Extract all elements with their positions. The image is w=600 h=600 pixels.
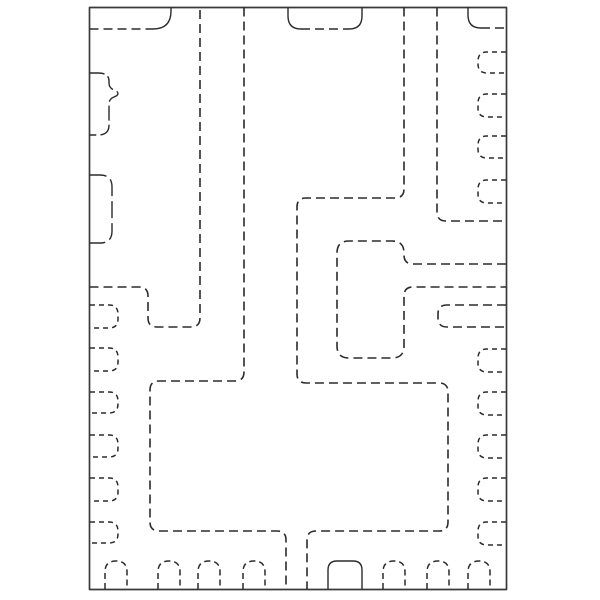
left-edge-pad-3 [90,392,118,413]
right-edge-pad-3 [478,136,506,158]
right-edge-pad-7 [478,435,506,458]
bottom-edge-pad-4 [243,561,265,589]
center-right-region-boundary [297,8,448,590]
package-outer-border [90,8,507,590]
left-edge-pad-4 [90,435,118,457]
bottom-edge-pad-5 [383,561,405,589]
bottom-edge-pad-7 [468,561,490,589]
left-rounded-lead [90,175,113,243]
top-left-pad-corner-curve [153,8,171,30]
right-edge-pad-5 [478,349,506,372]
top-right-region-boundary [437,8,506,222]
center-left-region-boundary [150,8,286,590]
right-edge-pad-9 [478,522,506,545]
right-edge-pad-4 [478,180,506,203]
left-bump-lead [90,73,119,135]
left-edge-pad-2 [90,348,118,371]
left-region-boundary [90,8,201,328]
right-stadium-bar-pad [438,305,506,327]
bottom-edge-pad-2 [158,561,180,589]
right-edge-pad-2 [478,94,506,117]
top-notch-side-walls [288,8,362,30]
left-edge-pad-5 [90,478,118,501]
left-edge-pad-6 [90,522,118,543]
right-edge-pad-8 [478,478,506,501]
bottom-wide-notch [328,561,362,589]
left-edge-pad-1 [90,305,118,328]
right-edge-pad-6 [478,392,506,415]
package-outline-drawing [0,0,600,600]
bottom-edge-pad-1 [105,561,127,589]
bottom-edge-pad-6 [427,561,449,589]
right-edge-pad-1 [478,52,506,73]
bottom-edge-pad-3 [198,561,220,589]
center-pad-with-right-arm [337,241,506,358]
package-outline-page [0,0,600,600]
top-right-corner-curve [468,8,481,29]
